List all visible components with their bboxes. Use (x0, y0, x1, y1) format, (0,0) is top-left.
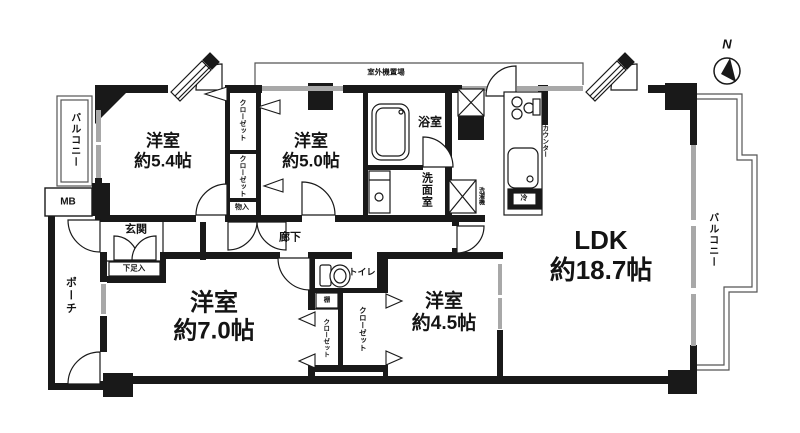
label-closet-4: クローゼット (358, 307, 367, 352)
bathtub-faucet (399, 110, 403, 114)
label-kitchen-counter: カウンター (540, 125, 547, 158)
stove-burner (512, 97, 522, 107)
toilet-tank (320, 265, 331, 286)
stove-grill (533, 99, 540, 115)
vanity-sink (369, 171, 390, 213)
sink-drain (527, 176, 533, 182)
label-bedroom-5-0: 洋室 約5.0帖 (282, 131, 340, 170)
label-closet-3: クローゼット (321, 319, 328, 358)
label-bedroom-4-5: 洋室 約4.5帖 (412, 291, 476, 335)
label-hallway: 廊下 (279, 232, 301, 245)
floorplan-geometry (0, 0, 800, 433)
kitchen-sink (508, 148, 538, 188)
label-bedroom-7-0: 洋室 約7.0帖 (173, 289, 254, 344)
label-washroom: 洗面室 (420, 172, 433, 208)
label-storage: 物入 (235, 204, 249, 212)
label-entrance: 玄関 (125, 224, 147, 237)
bathtub-inner (376, 108, 405, 156)
label-balcony-right: バルコニー (706, 213, 718, 268)
label-ldk: LDK 約18.7帖 (550, 226, 653, 286)
label-bedroom-5-4: 洋室 約5.4帖 (134, 131, 192, 170)
stove-burner (512, 109, 522, 119)
label-meter-box: MB (60, 196, 76, 208)
label-fridge: 冷 (521, 195, 528, 203)
label-closet-2: クローゼット (238, 155, 246, 197)
label-shelf: 棚 (324, 296, 331, 303)
label-balcony-left: バルコニー (68, 113, 80, 168)
label-closet-1: クローゼット (238, 99, 246, 141)
label-washer-space: 洗濯機 (477, 187, 484, 205)
label-shoe-cabinet: 下足入 (123, 265, 146, 274)
label-outdoor-unit-space: 室外機置場 (367, 69, 405, 78)
compass-north-label: N (722, 38, 731, 53)
label-porch: ポーチ (64, 277, 77, 316)
label-toilet: トイレ (348, 267, 375, 277)
compass-icon (714, 58, 740, 84)
label-bathroom: 浴室 (418, 116, 442, 130)
floorplan: 洋室 約5.4帖 洋室 約5.0帖 洋室 約7.0帖 洋室 約4.5帖 LDK … (0, 0, 800, 433)
outdoor-unit-area (255, 63, 583, 85)
